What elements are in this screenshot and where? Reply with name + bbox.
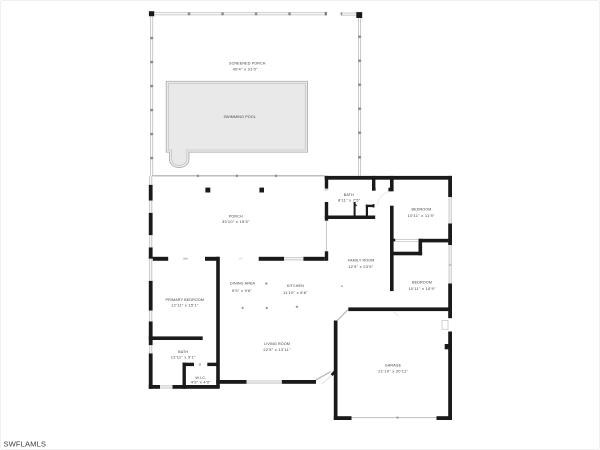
svg-text:PRIMARY BEDROOM: PRIMARY BEDROOM	[166, 298, 205, 302]
svg-text:33'10" x 15'5": 33'10" x 15'5"	[222, 219, 250, 224]
svg-text:12'11" x 15'1": 12'11" x 15'1"	[171, 302, 199, 307]
svg-text:12'5" x 23'5": 12'5" x 23'5"	[348, 264, 374, 269]
svg-text:BEDROOM: BEDROOM	[412, 281, 432, 285]
svg-text:11'10" x 8'6": 11'10" x 8'6"	[283, 290, 308, 295]
svg-text:BEDROOM: BEDROOM	[412, 208, 432, 212]
svg-text:10'11" x 11'9": 10'11" x 11'9"	[408, 213, 435, 218]
svg-text:GARAGE: GARAGE	[385, 363, 402, 367]
svg-text:SWFLAMLS: SWFLAMLS	[4, 439, 47, 448]
svg-text:FAMILY ROOM: FAMILY ROOM	[348, 259, 375, 263]
svg-text:10'11" x 10'9": 10'11" x 10'9"	[408, 286, 436, 291]
svg-text:PORCH: PORCH	[229, 215, 243, 219]
svg-text:40'4" x 31'0": 40'4" x 31'0"	[233, 66, 259, 71]
svg-text:9'5" x 9'6": 9'5" x 9'6"	[232, 288, 253, 293]
svg-text:DINING AREA: DINING AREA	[230, 281, 256, 285]
svg-text:8'11" x 7'5": 8'11" x 7'5"	[338, 197, 361, 202]
svg-text:BATH: BATH	[178, 350, 188, 354]
svg-text:21'10" x 20'11": 21'10" x 20'11"	[378, 369, 408, 374]
svg-text:12'11" x 9'1": 12'11" x 9'1"	[171, 355, 196, 360]
svg-text:SWIMMING POOL: SWIMMING POOL	[223, 115, 256, 119]
svg-text:BATH: BATH	[344, 193, 354, 197]
svg-text:LIVING ROOM: LIVING ROOM	[264, 342, 290, 346]
svg-text:KITCHEN: KITCHEN	[287, 284, 304, 288]
svg-text:4'9" x 4'0": 4'9" x 4'0"	[191, 380, 212, 385]
svg-text:SCREENED PORCH: SCREENED PORCH	[229, 61, 266, 65]
svg-text:22'5" x 13'11": 22'5" x 13'11"	[263, 347, 291, 352]
